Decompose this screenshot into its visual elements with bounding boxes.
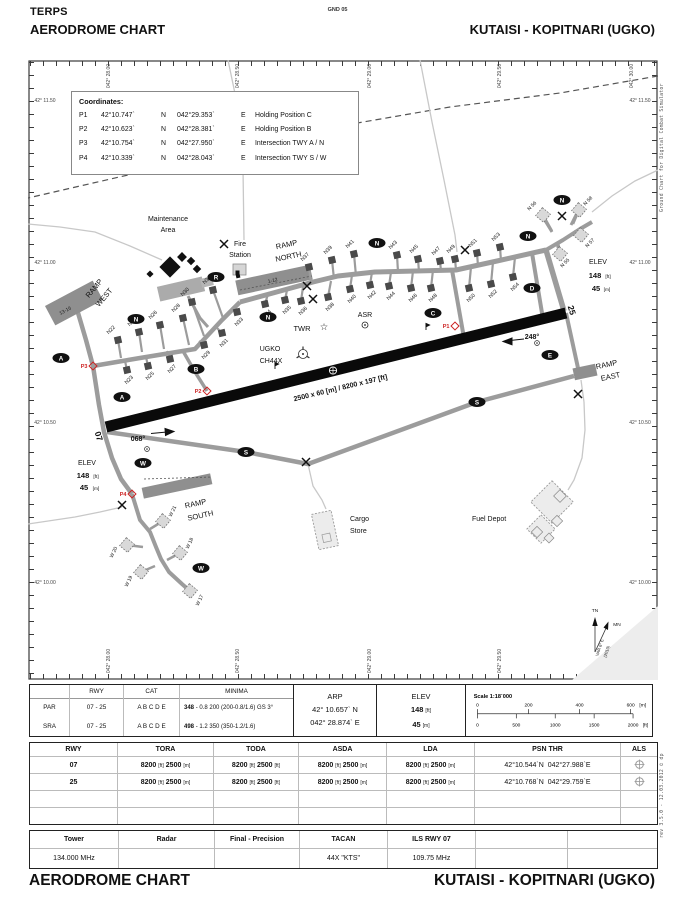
stand-N39 [328, 256, 336, 264]
final-precision-freq [215, 849, 300, 869]
stand-W 19 [134, 565, 149, 580]
grid-label-lon: 042° 29.00 [367, 64, 373, 88]
arp-box: ARP 42° 10.657` N 042° 28.874` E [293, 684, 378, 737]
runway-row-07: 07 8200 [ft] 2500 [m] 8200 [ft] 2500 [ft… [30, 757, 658, 774]
stand-N35 [281, 296, 289, 304]
coordinate-row: P142°10.747`N042°29.353`EHolding Positio… [79, 109, 351, 123]
stand-label: N51 [468, 238, 479, 249]
map-label: 07 [93, 430, 105, 442]
minima-header-cat: CAT [124, 685, 180, 699]
holding-point-label: P2 [195, 389, 202, 395]
fuel-depot-building [527, 481, 573, 543]
stand-label: N 56 [526, 200, 538, 212]
stand-label: N25 [145, 371, 156, 382]
taxiway-badge-letter: S [475, 399, 479, 406]
map-label: Area [161, 227, 176, 234]
stand-N25 [144, 362, 152, 370]
taxiway-c [452, 270, 464, 338]
psn-thr-cell: 42°10.768`N 042°29.759`E [475, 774, 621, 791]
stand-label: W 19 [124, 575, 134, 588]
coordinate-row: P342°10.754`N042°27.950`EIntersection TW… [79, 137, 351, 151]
point-lat: 42°10.623` [101, 123, 161, 137]
minima-rwy: 07 - 25 [70, 698, 124, 717]
grid-label-lat: 42° 11.00 [34, 260, 55, 266]
col-final-precision: Final - Precision [215, 831, 300, 849]
stand-label: N36 [298, 306, 309, 317]
als-cell [621, 757, 658, 774]
stand-N36 [297, 297, 305, 305]
empty-cell [476, 849, 568, 869]
arp-lon: 042° 28.874` E [294, 716, 377, 729]
cargo-store-building [311, 510, 338, 549]
stand-label: N41 [345, 239, 356, 250]
map-label: [ft] [93, 474, 98, 480]
point-lon: 042°29.353` [177, 109, 241, 123]
stand-N44 [385, 282, 393, 290]
closed-taxiway-x-icon [220, 240, 228, 248]
asda-cell: 8200 [ft] 2500 [m] [299, 774, 387, 791]
coordinates-box: Coordinates: P142°10.747`N042°29.353`EHo… [71, 91, 359, 175]
lon-hemisphere: E [241, 123, 255, 137]
stand-label: W 18 [185, 537, 195, 550]
stand-label: N44 [386, 291, 397, 302]
minima-value-bold: 498 [184, 724, 194, 730]
psn-thr-cell: 42°10.544`N 042°27.988`E [475, 757, 621, 774]
point-lon: 042°28.381` [177, 123, 241, 137]
stand-N47 [436, 257, 444, 265]
aerodrome-map-area: ☆ [28, 60, 658, 680]
compass-rose [572, 606, 658, 680]
closed-taxiway-x-icon [118, 501, 126, 509]
runway-midpoint-icon [329, 367, 336, 374]
taxiway-badge-letter: S [244, 449, 248, 456]
point-lat: 42°10.339` [101, 152, 161, 166]
stand-N28 [179, 314, 187, 322]
rwy-id: 25 [70, 779, 78, 786]
col-empty [476, 831, 568, 849]
holding-point-P1 [451, 322, 459, 330]
svg-text:600: 600 [626, 702, 634, 708]
map-label: [m] [604, 287, 611, 293]
stand-label: N53 [491, 232, 502, 243]
map-label: RAMP [184, 497, 207, 510]
minima-rwy: 07 - 25 [70, 717, 124, 736]
stand-N51 [473, 249, 481, 257]
point-id: P4 [79, 152, 101, 166]
stand-N49 [451, 255, 459, 263]
grid-label-lon: 042° 30.00 [629, 64, 635, 88]
closed-taxiway-x-icon [558, 212, 566, 220]
map-label: CH44X [260, 358, 283, 365]
svg-text:2000: 2000 [627, 723, 638, 729]
grid-label-lat: 42° 10.00 [629, 580, 651, 586]
stand-N42 [366, 281, 374, 289]
point-id: P3 [79, 137, 101, 151]
taxiway-e [566, 313, 578, 368]
svg-text:400: 400 [575, 702, 583, 708]
map-label: RAMP [595, 358, 618, 371]
stand-N22 [114, 336, 122, 344]
scale-ft-labels: 0500 10001500 2000 [ft] [476, 723, 648, 729]
stand-N23 [123, 366, 131, 374]
stand-label: N39 [323, 245, 334, 256]
map-label: 148 [77, 471, 90, 480]
taxiway-badge-letter: R [214, 274, 219, 281]
stand-label: N49 [446, 244, 457, 255]
tower-freq: 134.000 MHz [30, 849, 119, 869]
stand-N 56 [536, 208, 551, 223]
radar-freq [119, 849, 215, 869]
grid-label-lat: 42° 10.50 [34, 420, 56, 426]
taxiway-badge-letter: C [431, 310, 436, 317]
stand-label: N35 [282, 305, 293, 316]
map-label: TN [592, 608, 599, 614]
als-icon [634, 759, 645, 770]
lat-hemisphere: N [161, 123, 177, 137]
map-label: EAST [600, 370, 621, 383]
stand-stub [213, 290, 223, 318]
stand-N41 [350, 250, 358, 258]
taxiway-badge-letter: E [548, 352, 552, 359]
grid-label-lat: 42° 10.00 [34, 580, 56, 586]
stand-label: N47 [431, 246, 442, 257]
svg-text:0: 0 [476, 702, 479, 708]
map-label: Cargo [350, 516, 369, 523]
taxiway-badge-letter: N [375, 240, 380, 247]
stand-stub [183, 318, 189, 345]
grid-label-lon: 042° 28.50 [235, 64, 241, 88]
map-label: Station [229, 252, 251, 259]
scale-m-unit: [m] [639, 702, 646, 708]
stand-N50 [465, 284, 473, 292]
col-rwy: RWY [30, 743, 118, 757]
minima-header-minima: MINIMA [180, 685, 293, 699]
map-label: Fuel Depot [472, 516, 506, 523]
stand-N24 [135, 328, 143, 336]
stand-N52 [487, 280, 495, 288]
closed-taxiway-x-icon [309, 295, 317, 303]
point-lat: 42°10.754` [101, 137, 161, 151]
rwy-id: 07 [70, 762, 78, 769]
scale-box: Scale 1:18`000 0200 400600 [m] 0500 100 [465, 684, 653, 737]
minima-header-rwy: RWY [70, 685, 124, 699]
true-north-arrow-icon [592, 617, 597, 626]
col-asda: ASDA [299, 743, 387, 757]
airport-title: KUTAISI - KOPITNARI (UGKO) [470, 22, 655, 37]
stand-N46 [407, 284, 415, 292]
elev-ft: 148 [411, 705, 423, 714]
point-desc: Holding Position C [255, 109, 351, 123]
stand-label: W 17 [195, 594, 205, 607]
arrow-068-icon [165, 429, 174, 436]
holding-point-label: P4 [120, 492, 128, 498]
lat-hemisphere: N [161, 152, 177, 166]
map-label: 45 [592, 284, 600, 293]
info-strip: RWY CAT MINIMA PAR 07 - 25 A B C D E 348… [29, 684, 657, 737]
scale-label: Scale 1:18`000 [473, 694, 511, 700]
stand-label: N31 [219, 338, 230, 349]
comms-values-row: 134.000 MHz 44X "KTS" 109.75 MHz [30, 849, 658, 869]
minima-cat: A B C D E [124, 717, 180, 736]
elev-label: ELEV [377, 690, 465, 703]
scale-m-labels: 0200 400600 [m] [476, 702, 646, 708]
taxiway-badge-letter: B [194, 366, 199, 373]
page-ref: GND 05 [0, 7, 675, 13]
map-label: ASR [358, 312, 372, 319]
elev-m: 45 [412, 720, 420, 729]
coordinate-row: P442°10.339`N042°28.043`EIntersection TW… [79, 152, 351, 166]
page-title: AERODROME CHART [30, 22, 165, 37]
stand-N38 [324, 293, 332, 301]
taxiway-badge-letter: A [120, 394, 125, 401]
map-label: Store [350, 528, 367, 535]
stand-N53 [496, 243, 504, 251]
heading-068-dot-icon [146, 448, 148, 450]
grid-label-lat: 42° 11.00 [629, 260, 650, 266]
map-label: RAMP [275, 238, 298, 251]
arp-label: ARP [294, 690, 377, 703]
taxiway-badge-letter: A [59, 355, 64, 362]
stand-label: N 58 [582, 195, 594, 207]
taxiway-badge-letter: W [198, 565, 204, 572]
map-label: NORTH [275, 249, 303, 263]
stand-label: W 20 [109, 546, 119, 559]
stand-label: N33 [234, 317, 245, 328]
minima-value: 348 - 0.8 200 (200-0.8/1.6) GS 3° [180, 705, 293, 711]
col-als: ALS [621, 743, 658, 757]
stand-N26 [156, 321, 164, 329]
map-label: [ft] [605, 274, 610, 280]
lon-hemisphere: E [241, 137, 255, 151]
lat-hemisphere: N [161, 137, 177, 151]
map-label: UGKO [260, 346, 281, 353]
map-label: 248° [525, 333, 540, 341]
closed-taxiway-x-icon [461, 246, 469, 254]
stand-label: N28 [171, 303, 182, 314]
asda-cell: 8200 [ft] 2500 [m] [299, 757, 387, 774]
col-lda: LDA [387, 743, 475, 757]
point-lat: 42°10.747` [101, 109, 161, 123]
stand-label: N42 [367, 290, 378, 301]
runway-row-25: 25 8200 [ft] 2500 [m] 8200 [ft] 2500 [ft… [30, 774, 658, 791]
asr-dot-icon [364, 324, 366, 326]
empty-cell [568, 849, 658, 869]
taxiway-badge-letter: D [530, 285, 535, 292]
stand-N54 [509, 273, 517, 281]
col-tacan: TACAN [300, 831, 388, 849]
magnetic-north-arrow-icon [604, 622, 609, 631]
stand-N43 [393, 251, 401, 259]
taxiway-badge-letter: N [266, 314, 271, 321]
minima-header [30, 685, 70, 699]
stand-label: N50 [466, 293, 477, 304]
toda-cell: 8200 [ft] 2500 [ft] [214, 757, 299, 774]
svg-text:200: 200 [524, 702, 532, 708]
stand-label: N26 [148, 310, 159, 321]
maintenance-hangars [146, 252, 240, 278]
holding-point-label: P1 [443, 324, 450, 330]
grid-label-lon: 042° 29.50 [497, 649, 503, 673]
map-label: Maintenance [148, 216, 188, 223]
stand-label: N22 [106, 325, 117, 336]
empty-row [30, 791, 658, 808]
col-psn-thr: PSN THR [475, 743, 621, 757]
grid-label-lon: 042° 29.00 [367, 649, 373, 673]
map-label: ELEV [78, 460, 96, 467]
stand-label: N40 [347, 294, 358, 305]
footer-title: AERODROME CHART [29, 872, 190, 890]
grid-label-lon: 042° 28.00 [106, 649, 112, 673]
map-label: ELEV [589, 259, 607, 266]
grid-label-lat: 42° 11.50 [34, 98, 55, 104]
lat-hemisphere: N [161, 109, 177, 123]
elev-m-unit: [m] [423, 723, 430, 729]
col-tora: TORA [118, 743, 214, 757]
stand-N27 [166, 355, 174, 363]
stand-label: N48 [428, 293, 439, 304]
ils-freq: 109.75 MHz [388, 849, 476, 869]
minima-value: 498 - 1.2 350 (350-1.2/1.6) [180, 724, 293, 730]
lon-hemisphere: E [241, 152, 255, 166]
stand-label: N38 [325, 302, 336, 313]
map-label: SOUTH [187, 508, 215, 522]
empty-row [30, 808, 658, 825]
stand-label: N 57 [584, 237, 596, 249]
svg-text:500: 500 [512, 723, 520, 729]
stand-label: N46 [408, 293, 419, 304]
map-label: TWR [293, 324, 311, 333]
col-empty [568, 831, 658, 849]
scale-ft-unit: [ft] [642, 723, 647, 729]
grid-label-lat: 42° 11.50 [629, 98, 650, 104]
tora-cell: 8200 [ft] 2500 [m] [118, 774, 214, 791]
side-note-bottom: rev 3.5.0 - 12.03.2012 © dp [660, 753, 665, 838]
toda-cell: 8200 [ft] 2500 [ft] [214, 774, 299, 791]
lda-cell: 8200 [ft] 2500 [m] [387, 757, 475, 774]
map-label: 068° [131, 435, 146, 443]
stand-label: N23 [124, 375, 135, 386]
lon-hemisphere: E [241, 109, 255, 123]
tora-cell: 8200 [ft] 2500 [m] [118, 757, 214, 774]
scale-bar: Scale 1:18`000 0200 400600 [m] 0500 100 [470, 688, 652, 732]
map-label: MN [613, 622, 621, 628]
point-lon: 042°28.043` [177, 152, 241, 166]
point-id: P1 [79, 109, 101, 123]
minima-value-rest: - 0.8 200 (200-0.8/1.6) GS 3° [196, 705, 273, 711]
arrow-248-icon [503, 338, 512, 345]
minima-row-label: SRA [30, 717, 70, 736]
map-label: [m] [93, 486, 100, 492]
stand-label: N45 [409, 244, 420, 255]
minima-value-bold: 348 [184, 705, 194, 711]
taxiway-badge-letter: N [526, 233, 531, 240]
stand-label: N43 [388, 240, 399, 251]
stand-label: N54 [510, 282, 521, 293]
svg-text:1500: 1500 [588, 723, 599, 729]
map-label: Fire [234, 241, 246, 248]
stand-stub [160, 325, 164, 349]
stand-label: N52 [488, 289, 499, 300]
point-desc: Holding Position B [255, 123, 351, 137]
coordinate-row: P242°10.623`N042°28.381`EHolding Positio… [79, 123, 351, 137]
tacan-channel: 44X "KTS" [300, 849, 388, 869]
stand-label: W 21 [168, 505, 178, 518]
map-label: 45 [80, 483, 88, 492]
maintenance-building [157, 277, 205, 302]
heading-248-dot-icon [536, 342, 538, 344]
aerodrome-chart-page: TERPS AERODROME CHART GND 05 KUTAISI - K… [0, 0, 675, 900]
grid-label-lon: 042° 28.50 [235, 649, 241, 673]
svg-text:0: 0 [476, 723, 479, 729]
col-ils: ILS RWY 07 [388, 831, 476, 849]
als-icon [634, 776, 645, 787]
grid-label-lat: 42° 10.50 [629, 420, 651, 426]
twr-star-icon: ☆ [320, 322, 329, 333]
stand-N32 [209, 286, 217, 294]
holding-point-label: P3 [81, 364, 88, 370]
map-label: 148 [589, 271, 602, 280]
minima-table: RWY CAT MINIMA PAR 07 - 25 A B C D E 348… [29, 684, 294, 737]
point-lon: 042°27.950` [177, 137, 241, 151]
closed-taxiway-x-icon [574, 390, 582, 398]
runway-table-header-row: RWY TORA TODA ASDA LDA PSN THR ALS [30, 743, 658, 757]
taxiway-badge-letter: N [134, 316, 139, 323]
elev-ft-unit: [ft] [425, 708, 431, 714]
footer-airport: KUTAISI - KOPITNARI (UGKO) [434, 872, 655, 890]
stand-W 20 [120, 538, 135, 553]
grid-label-lon: 042° 29.50 [497, 64, 503, 88]
point-id: P2 [79, 123, 101, 137]
grid-label-lon: 042° 28.00 [106, 64, 112, 88]
col-tower: Tower [30, 831, 119, 849]
stand-label: N29 [201, 350, 212, 361]
lda-cell: 8200 [ft] 2500 [m] [387, 774, 475, 791]
tacan-icon [297, 347, 310, 359]
side-note-top: Ground Chart for Digital Combat Simulato… [660, 83, 665, 212]
als-cell [621, 774, 658, 791]
scale-bar-lines [477, 709, 633, 718]
coordinates-title: Coordinates: [79, 97, 351, 106]
comms-header-row: Tower Radar Final - Precision TACAN ILS … [30, 831, 658, 849]
runway-table: RWY TORA TODA ASDA LDA PSN THR ALS 07 82… [29, 742, 658, 825]
elev-box: ELEV 148 [ft] 45 [m] [376, 684, 466, 737]
col-radar: Radar [119, 831, 215, 849]
stand-N40 [346, 285, 354, 293]
stand-N48 [427, 284, 435, 292]
col-toda: TODA [214, 743, 299, 757]
point-desc: Intersection TWY A / N [255, 137, 351, 151]
svg-text:1000: 1000 [549, 723, 560, 729]
minima-value-rest: - 1.2 350 (350-1.2/1.6) [196, 724, 256, 730]
stand-N45 [414, 255, 422, 263]
minima-cat: A B C D E [124, 698, 180, 717]
stand-N34 [261, 300, 269, 308]
taxiway-badge-letter: N [560, 197, 565, 204]
taxiway-badge-letter: W [140, 460, 146, 467]
point-desc: Intersection TWY S / W [255, 152, 351, 166]
minima-row-label: PAR [30, 698, 70, 717]
comms-table: Tower Radar Final - Precision TACAN ILS … [29, 830, 658, 869]
stand-label: N27 [167, 364, 178, 375]
arp-lat: 42° 10.657` N [294, 703, 377, 716]
